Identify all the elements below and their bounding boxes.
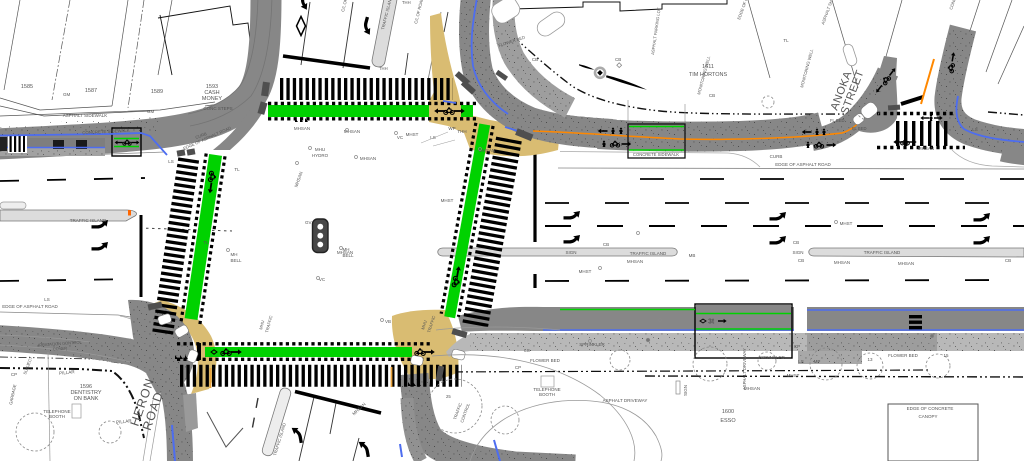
svg-text:MHSAN: MHSAN bbox=[898, 261, 914, 266]
svg-text:FLOWER BED: FLOWER BED bbox=[530, 358, 561, 363]
svg-text:BOOTH: BOOTH bbox=[539, 392, 555, 397]
svg-text:SPRINKLER: SPRINKLER bbox=[579, 342, 605, 347]
svg-text:MHST: MHST bbox=[579, 269, 592, 274]
svg-text:SIGN: SIGN bbox=[792, 250, 803, 255]
svg-text:VC: VC bbox=[397, 135, 404, 140]
svg-text:TRAFFIC ISLAND: TRAFFIC ISLAND bbox=[864, 250, 901, 255]
svg-text:1600: 1600 bbox=[722, 409, 734, 415]
svg-text:3t: 3t bbox=[708, 319, 715, 326]
svg-text:MHSAN: MHSAN bbox=[294, 126, 310, 131]
svg-text:CURB: CURB bbox=[770, 154, 783, 159]
svg-text:WP: WP bbox=[448, 126, 455, 131]
svg-text:VC: VC bbox=[319, 277, 326, 282]
svg-text:CB: CB bbox=[603, 242, 609, 247]
svg-text:LS: LS bbox=[44, 297, 50, 302]
svg-text:FL BED: FL BED bbox=[830, 118, 845, 123]
svg-text:15: 15 bbox=[943, 353, 949, 358]
svg-text:FLOWER BED: FLOWER BED bbox=[888, 353, 919, 358]
svg-text:EDGE OF CONCRETE: EDGE OF CONCRETE bbox=[907, 406, 954, 411]
svg-text:MHSAN: MHSAN bbox=[834, 260, 850, 265]
svg-text:CB: CB bbox=[709, 93, 715, 98]
svg-text:ON BANK: ON BANK bbox=[74, 396, 99, 402]
svg-text:EDGE OF ASPHALT ROAD: EDGE OF ASPHALT ROAD bbox=[775, 162, 831, 167]
svg-text:LS: LS bbox=[972, 127, 978, 132]
svg-text:TL: TL bbox=[234, 167, 240, 172]
svg-text:CANOPY: CANOPY bbox=[918, 414, 937, 419]
svg-text:THH: THH bbox=[379, 66, 388, 71]
svg-text:TIM HORTONS: TIM HORTONS bbox=[689, 72, 728, 78]
svg-text:LS: LS bbox=[168, 159, 174, 164]
svg-text:CONC STEPS: CONC STEPS bbox=[203, 106, 232, 111]
svg-text:CP: CP bbox=[11, 372, 17, 377]
svg-text:GV: GV bbox=[305, 220, 312, 225]
svg-text:CONCRETE SIDEWALK: CONCRETE SIDEWALK bbox=[633, 152, 679, 157]
svg-text:TL: TL bbox=[783, 38, 789, 43]
svg-text:EDGE OF ASPHALT ROAD: EDGE OF ASPHALT ROAD bbox=[2, 304, 58, 309]
svg-text:CB: CB bbox=[532, 57, 538, 62]
svg-text:CB: CB bbox=[798, 258, 804, 263]
svg-text:MHSAN: MHSAN bbox=[627, 259, 643, 264]
svg-text:1589: 1589 bbox=[151, 89, 163, 95]
svg-text:MH: MH bbox=[231, 252, 238, 257]
svg-text:TRAFFIC ISLAND: TRAFFIC ISLAND bbox=[630, 251, 667, 256]
svg-text:GM: GM bbox=[147, 109, 155, 114]
svg-text:MHST: MHST bbox=[441, 198, 454, 203]
svg-text:FL BED: FL BED bbox=[852, 126, 867, 131]
svg-text:TL: TL bbox=[203, 240, 209, 245]
svg-text:HYDRO: HYDRO bbox=[312, 153, 329, 158]
svg-text:13: 13 bbox=[867, 357, 873, 362]
svg-text:MHSAN: MHSAN bbox=[337, 250, 353, 255]
svg-text:MHST: MHST bbox=[787, 373, 800, 378]
svg-text:25: 25 bbox=[446, 394, 451, 399]
svg-text:MHSAN: MHSAN bbox=[360, 156, 376, 161]
svg-text:TRAFFIC ISLAND: TRAFFIC ISLAND bbox=[70, 218, 107, 223]
svg-text:MP: MP bbox=[814, 359, 821, 364]
svg-text:CB: CB bbox=[793, 240, 799, 245]
svg-text:SIGN: SIGN bbox=[683, 385, 688, 396]
svg-text:MHST: MHST bbox=[840, 221, 853, 226]
svg-text:CB: CB bbox=[1005, 258, 1011, 263]
svg-text:MHSAN: MHSAN bbox=[918, 146, 934, 151]
svg-text:CP: CP bbox=[515, 365, 521, 370]
svg-text:ESSO: ESSO bbox=[720, 418, 736, 424]
svg-text:CB: CB bbox=[615, 57, 621, 62]
svg-text:VB: VB bbox=[385, 319, 391, 324]
svg-text:MHU: MHU bbox=[315, 147, 325, 152]
svg-text:ASPHALT DRIVEWAY: ASPHALT DRIVEWAY bbox=[603, 398, 648, 403]
svg-text:THH: THH bbox=[402, 0, 411, 5]
svg-text:CP: CP bbox=[794, 344, 800, 349]
svg-text:BELL: BELL bbox=[230, 258, 242, 263]
svg-text:LS: LS bbox=[524, 348, 530, 353]
svg-text:LS: LS bbox=[798, 359, 804, 364]
svg-text:SPRINKLER: SPRINKLER bbox=[759, 355, 785, 360]
svg-text:MB: MB bbox=[689, 253, 696, 258]
svg-text:MONEY: MONEY bbox=[202, 96, 223, 102]
svg-text:SIGN: SIGN bbox=[565, 250, 576, 255]
svg-text:BOOTH: BOOTH bbox=[49, 414, 65, 419]
svg-text:ASPHALT DRIVEWAY: ASPHALT DRIVEWAY bbox=[742, 348, 747, 390]
svg-text:GM: GM bbox=[63, 92, 71, 97]
svg-text:THH: THH bbox=[457, 129, 466, 134]
svg-text:1587: 1587 bbox=[85, 88, 97, 94]
svg-text:ASPHALT SIDEWALK: ASPHALT SIDEWALK bbox=[63, 113, 107, 118]
svg-text:MHST: MHST bbox=[406, 132, 419, 137]
svg-text:1585: 1585 bbox=[21, 84, 33, 90]
svg-text:COVER: COVER bbox=[53, 346, 68, 352]
